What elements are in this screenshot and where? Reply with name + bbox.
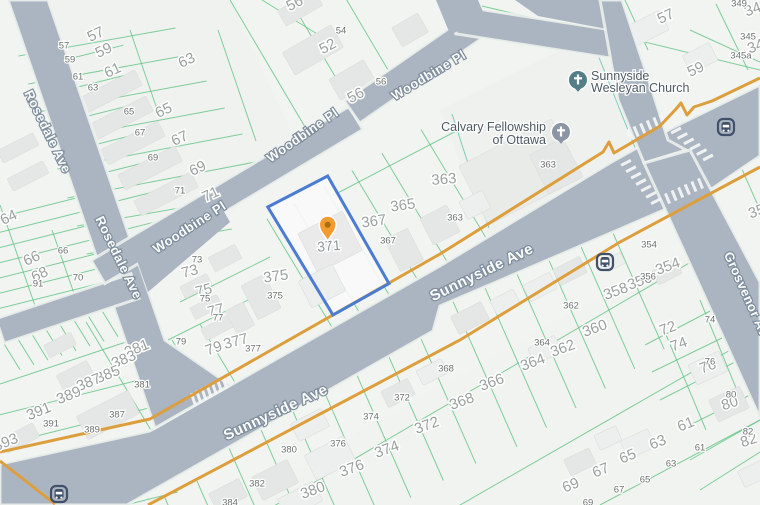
svg-text:382: 382 [249,479,265,490]
svg-text:77: 77 [213,313,224,324]
svg-text:380: 380 [281,445,297,456]
svg-text:362: 362 [563,301,579,312]
svg-text:65: 65 [640,475,651,486]
svg-text:66: 66 [58,246,69,257]
svg-text:of Ottawa: of Ottawa [493,133,547,147]
svg-text:375: 375 [267,291,283,302]
svg-text:387: 387 [109,410,125,421]
svg-text:377: 377 [245,344,261,355]
svg-text:82: 82 [743,427,754,438]
svg-text:368: 368 [438,364,454,375]
svg-text:374: 374 [363,412,379,423]
svg-text:356: 356 [640,272,656,283]
svg-text:65: 65 [124,107,135,118]
svg-text:80: 80 [726,390,737,401]
svg-text:54: 54 [336,26,347,37]
svg-text:79: 79 [176,337,187,348]
svg-text:67: 67 [614,485,625,496]
svg-text:349: 349 [731,0,747,10]
svg-text:63: 63 [88,83,99,94]
svg-text:365: 365 [389,195,416,215]
svg-text:91: 91 [33,279,44,290]
svg-text:363: 363 [447,213,463,224]
svg-text:69: 69 [148,153,159,164]
svg-text:372: 372 [394,393,410,404]
svg-text:59: 59 [65,55,76,66]
svg-text:364: 364 [534,338,550,349]
svg-text:375: 375 [262,266,289,286]
svg-text:363: 363 [540,160,556,171]
svg-text:345a: 345a [730,51,752,62]
svg-text:Calvary Fellowship: Calvary Fellowship [441,120,546,134]
svg-text:67: 67 [135,128,146,139]
svg-text:Wesleyan Church: Wesleyan Church [591,81,689,95]
svg-text:63: 63 [666,459,677,470]
svg-text:56: 56 [376,77,387,88]
svg-text:376: 376 [330,439,346,450]
svg-text:367: 367 [380,236,396,247]
svg-text:73: 73 [192,255,203,266]
svg-text:71: 71 [175,186,186,197]
svg-text:367: 367 [360,211,387,231]
svg-text:69: 69 [583,498,594,505]
svg-text:354: 354 [641,240,657,251]
svg-text:76: 76 [705,357,716,368]
svg-text:345: 345 [740,32,756,43]
svg-text:74: 74 [705,315,716,326]
svg-text:61: 61 [73,72,84,83]
svg-text:61: 61 [695,443,706,454]
svg-text:363: 363 [431,170,457,189]
svg-text:391: 391 [43,419,59,430]
svg-text:57: 57 [59,41,70,52]
svg-text:75: 75 [200,294,211,305]
svg-text:389: 389 [84,425,100,436]
svg-text:381: 381 [134,380,150,391]
svg-text:70: 70 [73,273,84,284]
svg-text:384: 384 [222,498,238,505]
